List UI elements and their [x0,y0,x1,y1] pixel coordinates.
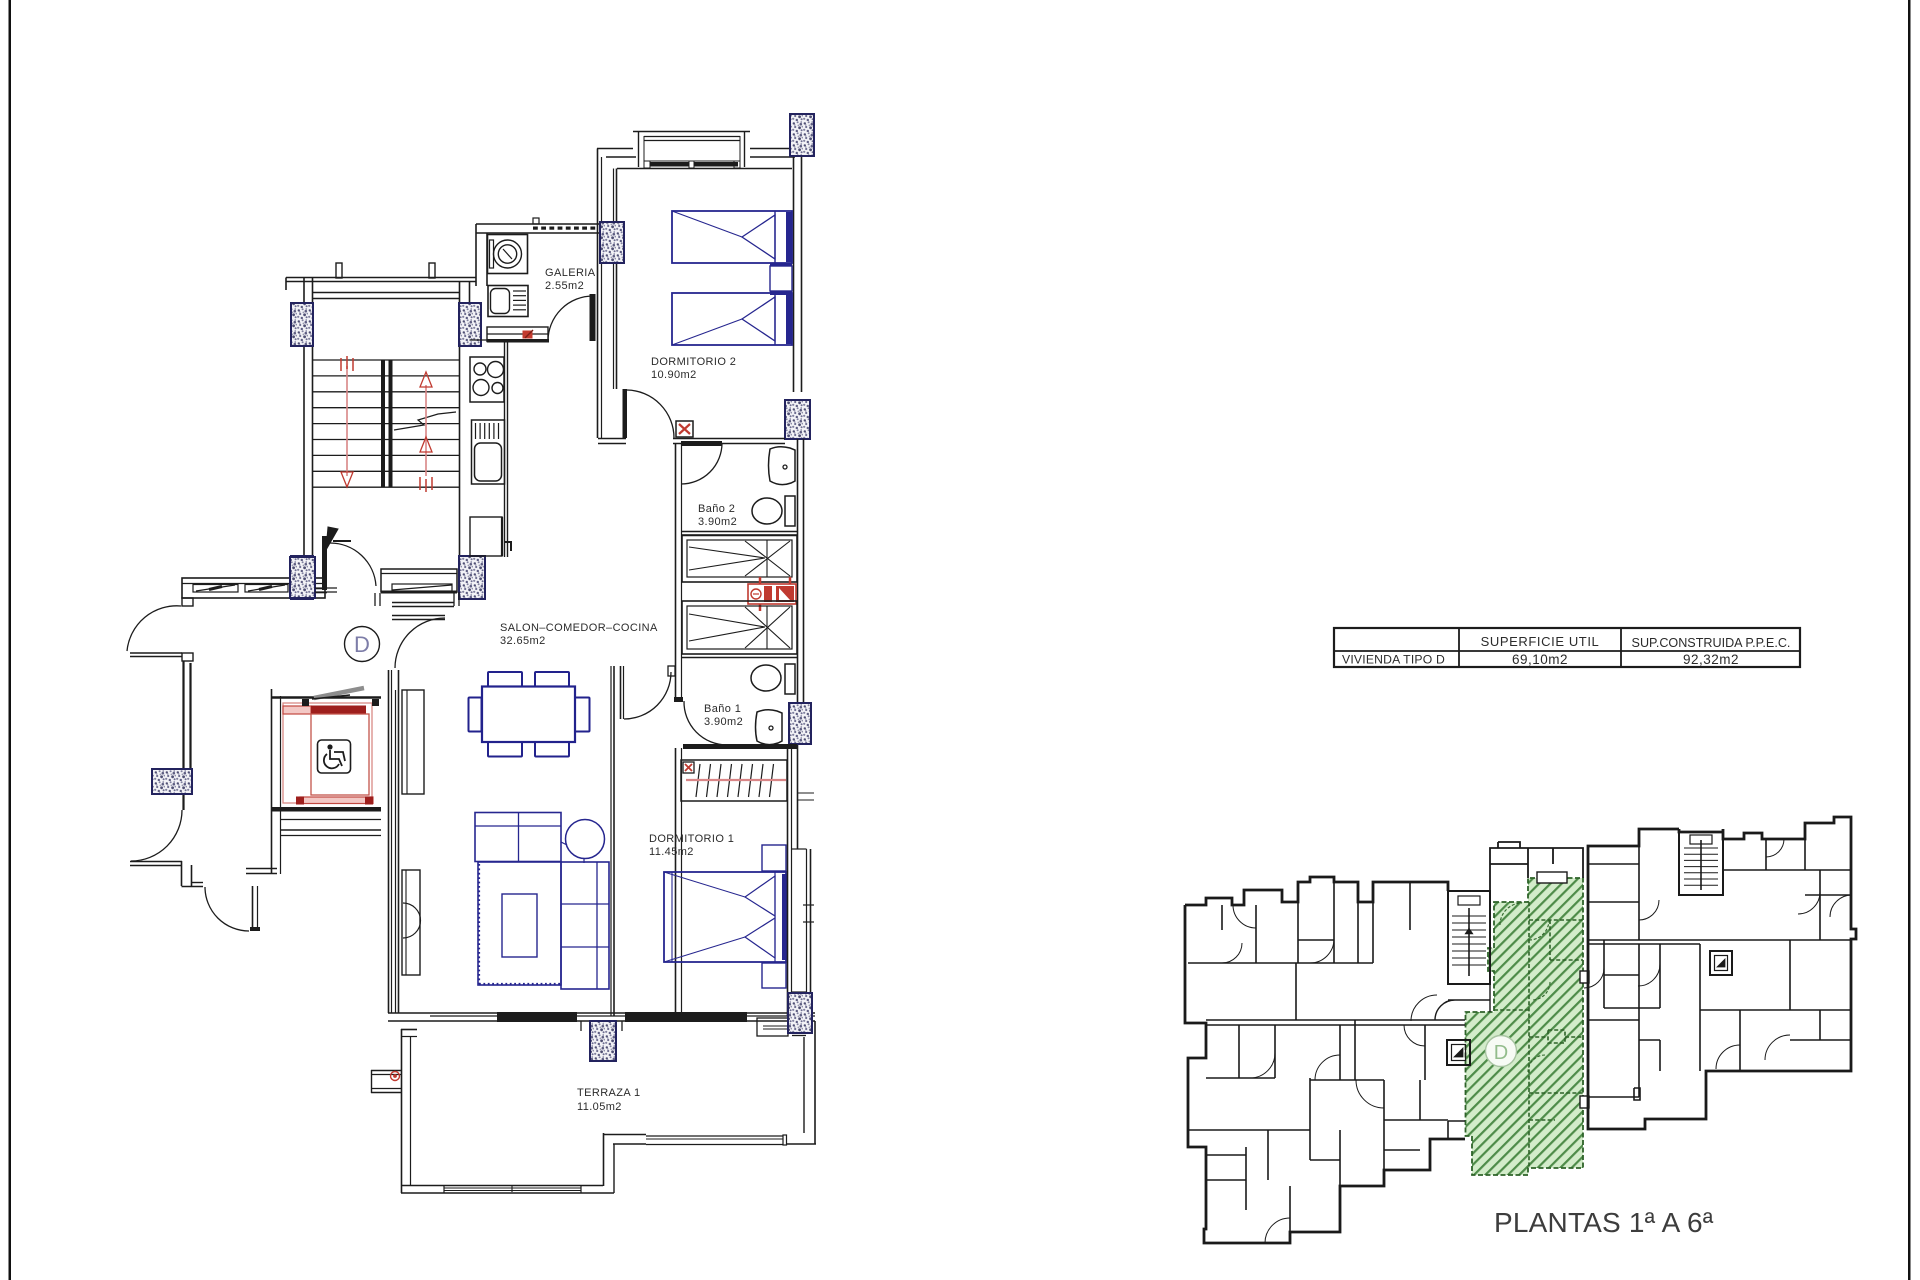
svg-text:3.90m2: 3.90m2 [698,516,737,528]
svg-text:TERRAZA 1: TERRAZA 1 [577,1087,641,1099]
svg-text:2.55m2: 2.55m2 [545,280,584,292]
svg-text:Baño 1: Baño 1 [704,703,741,715]
svg-text:D: D [1494,1042,1508,1064]
svg-text:SUPERFICIE UTIL: SUPERFICIE UTIL [1481,634,1600,649]
svg-text:VIVIENDA TIPO D: VIVIENDA TIPO D [1342,653,1445,667]
svg-text:10.90m2: 10.90m2 [651,369,697,381]
svg-text:Baño 2: Baño 2 [698,503,735,515]
svg-text:11.05m2: 11.05m2 [577,1101,622,1113]
svg-text:GALERIA: GALERIA [545,267,596,279]
svg-text:SUP.CONSTRUIDA P.P.E.C.: SUP.CONSTRUIDA P.P.E.C. [1632,636,1791,650]
svg-text:32.65m2: 32.65m2 [500,635,546,647]
svg-text:PLANTAS 1ª A 6ª: PLANTAS 1ª A 6ª [1494,1207,1714,1238]
svg-text:DORMITORIO 2: DORMITORIO 2 [651,356,736,368]
svg-text:3.90m2: 3.90m2 [704,716,743,728]
svg-text:DORMITORIO 1: DORMITORIO 1 [649,833,734,845]
svg-text:69,10m2: 69,10m2 [1512,652,1568,667]
svg-text:11.45m2: 11.45m2 [649,846,694,858]
svg-text:92,32m2: 92,32m2 [1683,652,1739,667]
svg-text:D: D [354,632,370,657]
svg-text:SALON–COMEDOR–COCINA: SALON–COMEDOR–COCINA [500,622,658,634]
